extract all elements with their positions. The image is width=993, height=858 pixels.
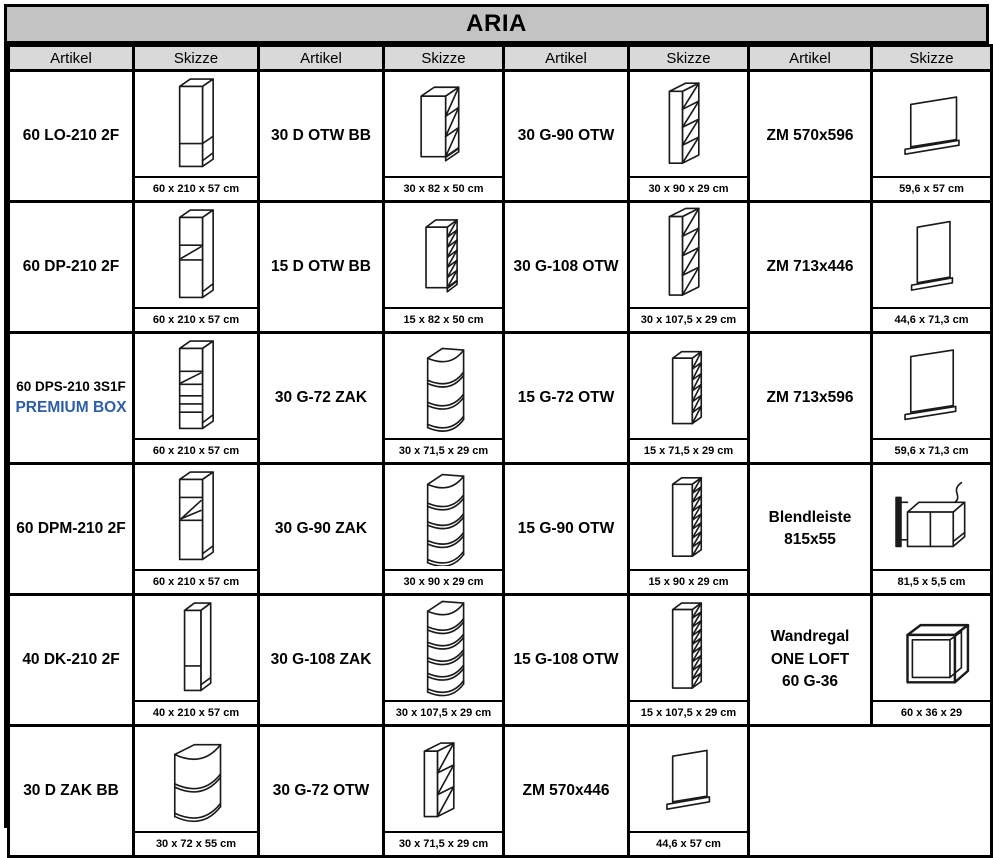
artikel-cell: ZM 570x596 (749, 71, 872, 202)
base-open-shelf-30-icon (385, 72, 502, 176)
product-row: 40 DK-210 2F40 x 210 x 57 cm30 G-108 ZAK… (9, 595, 992, 726)
artikel-label: 60 LO-210 2F (23, 125, 120, 147)
skizze-cell: 30 x 72 x 55 cm (134, 726, 259, 857)
skizze-cell: 81,5 x 5,5 cm (872, 464, 992, 595)
side-panel-713x596-icon (873, 334, 990, 438)
tall-narrow-cabinet-2f-icon (135, 596, 257, 700)
skizze-cell: 30 x 90 x 29 cm (384, 464, 504, 595)
artikel-cell: 60 DP-210 2F (9, 202, 134, 333)
side-panel-570x446-icon (630, 727, 747, 831)
wall-corner-shelf-108-icon (385, 596, 502, 700)
artikel-label: 40 DK-210 2F (22, 649, 119, 671)
artikel-label: 30 G-108 OTW (513, 256, 618, 278)
artikel-cell: ZM 713x596 (749, 333, 872, 464)
dimension-label: 60 x 210 x 57 cm (135, 438, 257, 462)
wall-open-shelf-30-108-icon (630, 203, 747, 307)
tall-microwave-cabinet-icon (135, 465, 257, 569)
wall-open-shelf-15-90-icon (630, 465, 747, 569)
artikel-label: 30 G-90 ZAK (275, 518, 367, 540)
skizze-cell: 15 x 107,5 x 29 cm (629, 595, 749, 726)
skizze-cell: 15 x 90 x 29 cm (629, 464, 749, 595)
skizze-cell: 44,6 x 71,3 cm (872, 202, 992, 333)
artikel-cell: 60 DPM-210 2F (9, 464, 134, 595)
skizze-cell: 30 x 90 x 29 cm (629, 71, 749, 202)
dimension-label: 60 x 36 x 29 (873, 700, 990, 724)
column-header-artikel-2: Artikel (504, 46, 629, 71)
tall-cabinet-2f-icon (135, 72, 257, 176)
artikel-label: 815x55 (784, 529, 836, 551)
skizze-cell: 30 x 82 x 50 cm (384, 71, 504, 202)
base-open-shelf-15-icon (385, 203, 502, 307)
wall-corner-shelf-72-icon (385, 334, 502, 438)
skizze-cell: 59,6 x 71,3 cm (872, 333, 992, 464)
skizze-cell: 60 x 210 x 57 cm (134, 202, 259, 333)
skizze-cell: 60 x 210 x 57 cm (134, 333, 259, 464)
column-header-skizze-2: Skizze (629, 46, 749, 71)
column-header-skizze-0: Skizze (134, 46, 259, 71)
artikel-label: 15 G-90 OTW (518, 518, 614, 540)
column-header-artikel-3: Artikel (749, 46, 872, 71)
skizze-cell: 60 x 210 x 57 cm (134, 464, 259, 595)
tall-oven-drawer-cabinet-icon (135, 334, 257, 438)
skizze-cell: 60 x 210 x 57 cm (134, 71, 259, 202)
artikel-label: ONE LOFT (771, 649, 849, 671)
artikel-cell: 30 G-72 ZAK (259, 333, 384, 464)
artikel-cell: 30 G-108 OTW (504, 202, 629, 333)
column-header-skizze-1: Skizze (384, 46, 504, 71)
artikel-label: ZM 713x596 (766, 387, 853, 409)
column-header-artikel-0: Artikel (9, 46, 134, 71)
artikel-cell: 30 D OTW BB (259, 71, 384, 202)
artikel-cell: 30 G-72 OTW (259, 726, 384, 857)
artikel-label: Wandregal (771, 626, 850, 648)
skizze-cell: 44,6 x 57 cm (629, 726, 749, 857)
artikel-label: 15 G-72 OTW (518, 387, 614, 409)
artikel-label: 30 G-108 ZAK (271, 649, 372, 671)
skizze-cell: 60 x 36 x 29 (872, 595, 992, 726)
dimension-label: 59,6 x 57 cm (873, 176, 990, 200)
product-row: 60 DP-210 2F60 x 210 x 57 cm15 D OTW BB1… (9, 202, 992, 333)
artikel-cell: 60 LO-210 2F (9, 71, 134, 202)
wall-corner-shelf-90-icon (385, 465, 502, 569)
artikel-cell: 30 G-90 ZAK (259, 464, 384, 595)
dimension-label: 60 x 210 x 57 cm (135, 176, 257, 200)
artikel-cell: 30 G-108 ZAK (259, 595, 384, 726)
artikel-cell: 15 D OTW BB (259, 202, 384, 333)
dimension-label: 30 x 71,5 x 29 cm (385, 438, 502, 462)
dimension-label: 15 x 82 x 50 cm (385, 307, 502, 331)
dimension-label: 59,6 x 71,3 cm (873, 438, 990, 462)
product-row: 60 LO-210 2F60 x 210 x 57 cm30 D OTW BB3… (9, 71, 992, 202)
artikel-cell: 60 DPS-210 3S1FPREMIUM BOX (9, 333, 134, 464)
artikel-label: 60 DPS-210 3S1F (16, 377, 126, 397)
artikel-label: 60 G-36 (782, 671, 838, 693)
artikel-cell: 15 G-72 OTW (504, 333, 629, 464)
artikel-cell: Blendleiste815x55 (749, 464, 872, 595)
wall-open-shelf-30-72-icon (385, 727, 502, 831)
artikel-cell: ZM 570x446 (504, 726, 629, 857)
artikel-label: ZM 713x446 (766, 256, 853, 278)
dimension-label: 60 x 210 x 57 cm (135, 569, 257, 593)
dimension-label: 30 x 107,5 x 29 cm (385, 700, 502, 724)
dimension-label: 30 x 71,5 x 29 cm (385, 831, 502, 855)
artikel-cell: 40 DK-210 2F (9, 595, 134, 726)
artikel-label: 15 D OTW BB (271, 256, 371, 278)
skizze-cell: 30 x 107,5 x 29 cm (629, 202, 749, 333)
skizze-cell: 40 x 210 x 57 cm (134, 595, 259, 726)
blende-strip-icon (873, 465, 990, 569)
artikel-cell: 30 G-90 OTW (504, 71, 629, 202)
dimension-label: 44,6 x 71,3 cm (873, 307, 990, 331)
artikel-label: ZM 570x596 (766, 125, 853, 147)
skizze-cell: 30 x 71,5 x 29 cm (384, 333, 504, 464)
skizze-cell: 30 x 107,5 x 29 cm (384, 595, 504, 726)
empty-cell (749, 726, 992, 857)
wall-frame-shelf-icon (873, 596, 990, 700)
artikel-label: 60 DPM-210 2F (16, 518, 125, 540)
column-header-artikel-1: Artikel (259, 46, 384, 71)
dimension-label: 81,5 x 5,5 cm (873, 569, 990, 593)
product-row: 60 DPM-210 2F60 x 210 x 57 cm30 G-90 ZAK… (9, 464, 992, 595)
artikel-cell: 15 G-108 OTW (504, 595, 629, 726)
artikel-label: Blendleiste (769, 507, 852, 529)
artikel-label: 30 G-90 OTW (518, 125, 614, 147)
base-corner-shelf-icon (135, 727, 257, 831)
artikel-label: 60 DP-210 2F (23, 256, 120, 278)
dimension-label: 15 x 71,5 x 29 cm (630, 438, 747, 462)
catalog-sheet: ARIA ArtikelSkizzeArtikelSkizzeArtikelSk… (0, 0, 993, 832)
skizze-cell: 30 x 71,5 x 29 cm (384, 726, 504, 857)
dimension-label: 30 x 90 x 29 cm (630, 176, 747, 200)
dimension-label: 30 x 72 x 55 cm (135, 831, 257, 855)
wall-open-shelf-30-90-icon (630, 72, 747, 176)
artikel-label: 30 G-72 OTW (273, 780, 369, 802)
artikel-label: 30 D ZAK BB (23, 780, 119, 802)
dimension-label: 30 x 107,5 x 29 cm (630, 307, 747, 331)
side-panel-713x446-icon (873, 203, 990, 307)
dimension-label: 30 x 90 x 29 cm (385, 569, 502, 593)
artikel-label: 15 G-108 OTW (513, 649, 618, 671)
artikel-label: 30 D OTW BB (271, 125, 371, 147)
dimension-label: 15 x 90 x 29 cm (630, 569, 747, 593)
artikel-label: ZM 570x446 (522, 780, 609, 802)
premium-box-label: PREMIUM BOX (15, 397, 126, 419)
artikel-cell: ZM 713x446 (749, 202, 872, 333)
side-panel-570x596-icon (873, 72, 990, 176)
artikel-cell: WandregalONE LOFT60 G-36 (749, 595, 872, 726)
column-header-row: ArtikelSkizzeArtikelSkizzeArtikelSkizzeA… (9, 46, 992, 71)
dimension-label: 60 x 210 x 57 cm (135, 307, 257, 331)
wall-open-shelf-15-72-icon (630, 334, 747, 438)
dimension-label: 30 x 82 x 50 cm (385, 176, 502, 200)
artikel-label: 30 G-72 ZAK (275, 387, 367, 409)
artikel-cell: 15 G-90 OTW (504, 464, 629, 595)
product-row: 60 DPS-210 3S1FPREMIUM BOX60 x 210 x 57 … (9, 333, 992, 464)
tall-oven-cabinet-icon (135, 203, 257, 307)
wall-open-shelf-15-108-icon (630, 596, 747, 700)
dimension-label: 15 x 107,5 x 29 cm (630, 700, 747, 724)
column-header-skizze-3: Skizze (872, 46, 992, 71)
dimension-label: 40 x 210 x 57 cm (135, 700, 257, 724)
product-table: ArtikelSkizzeArtikelSkizzeArtikelSkizzeA… (7, 44, 993, 858)
catalog-frame: ARIA ArtikelSkizzeArtikelSkizzeArtikelSk… (4, 4, 989, 828)
product-row: 30 D ZAK BB30 x 72 x 55 cm30 G-72 OTW30 … (9, 726, 992, 857)
skizze-cell: 59,6 x 57 cm (872, 71, 992, 202)
dimension-label: 44,6 x 57 cm (630, 831, 747, 855)
skizze-cell: 15 x 82 x 50 cm (384, 202, 504, 333)
page-title: ARIA (7, 7, 986, 44)
skizze-cell: 15 x 71,5 x 29 cm (629, 333, 749, 464)
artikel-cell: 30 D ZAK BB (9, 726, 134, 857)
